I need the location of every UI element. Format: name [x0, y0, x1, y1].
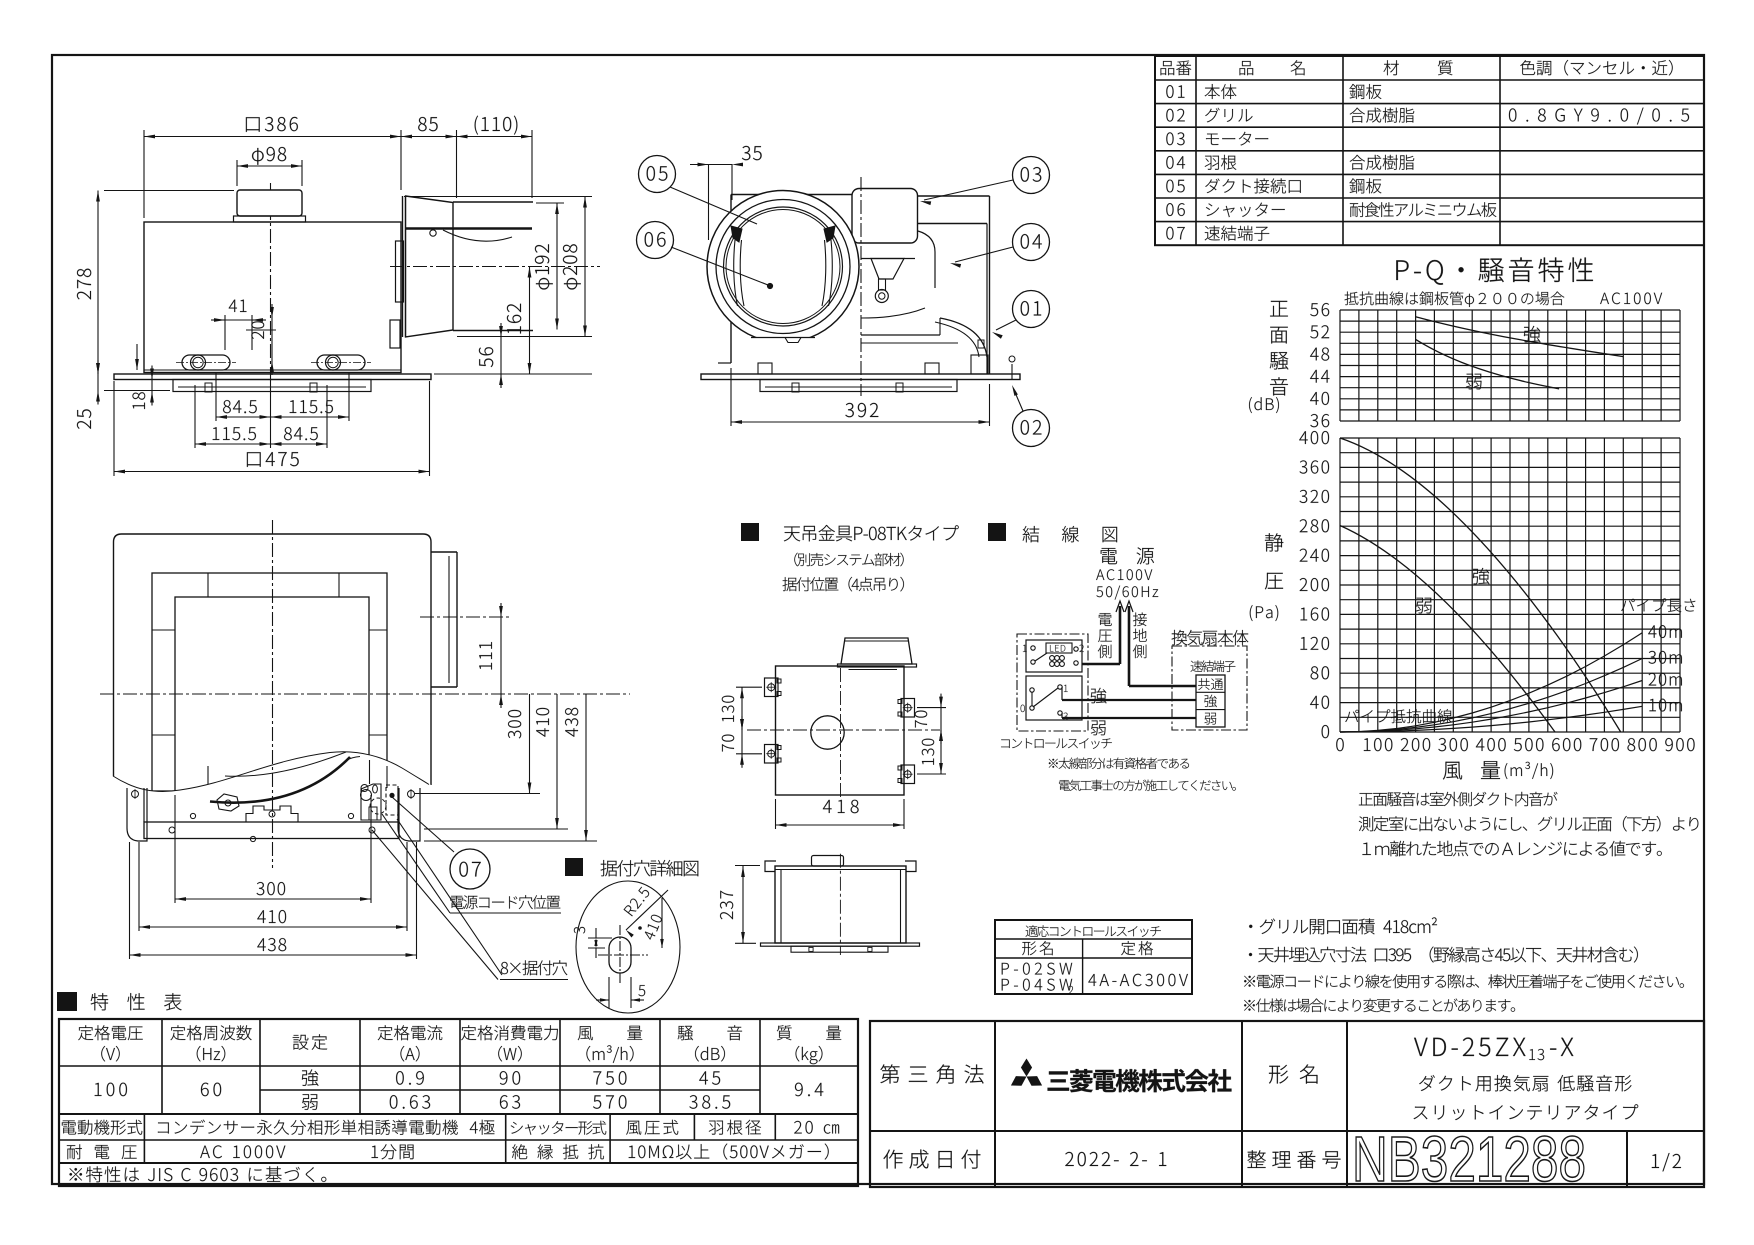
svg-text:NB321288: NB321288	[1352, 1123, 1586, 1195]
